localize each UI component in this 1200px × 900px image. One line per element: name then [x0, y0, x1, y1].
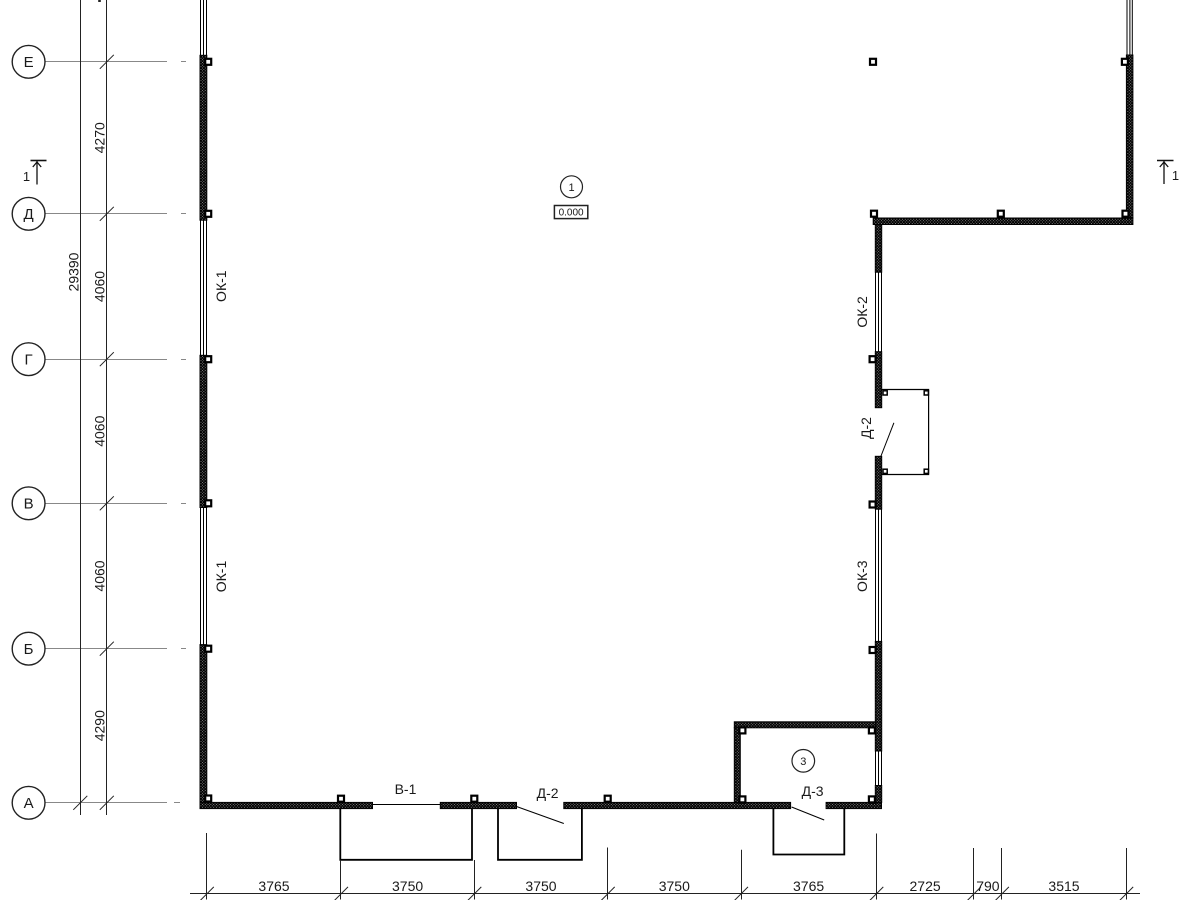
svg-text:ОК-3: ОК-3 [854, 560, 870, 592]
svg-text:1: 1 [1172, 168, 1179, 183]
svg-text:3515: 3515 [1048, 878, 1079, 894]
svg-text:3750: 3750 [659, 878, 690, 894]
svg-text:4060: 4060 [92, 560, 108, 591]
svg-text:В: В [24, 496, 34, 513]
svg-text:0.000: 0.000 [559, 208, 584, 219]
svg-text:4060: 4060 [92, 415, 108, 446]
svg-text:ОК-2: ОК-2 [854, 296, 870, 328]
svg-text:1: 1 [568, 182, 574, 194]
svg-text:Г: Г [25, 352, 33, 369]
svg-text:А: А [24, 795, 34, 812]
svg-text:3750: 3750 [525, 878, 556, 894]
svg-text:3765: 3765 [793, 878, 824, 894]
svg-text:4060: 4060 [92, 271, 108, 302]
svg-text:Б: Б [24, 641, 34, 658]
svg-text:ОК-1: ОК-1 [213, 270, 229, 302]
svg-text:Д-3: Д-3 [802, 783, 824, 799]
svg-text:2725: 2725 [910, 878, 941, 894]
svg-text:Е: Е [24, 54, 34, 71]
svg-text:Д: Д [24, 206, 34, 223]
svg-text:4290: 4290 [92, 710, 108, 741]
svg-text:29390: 29390 [66, 252, 82, 291]
svg-text:790: 790 [976, 878, 1000, 894]
svg-text:В-1: В-1 [395, 781, 417, 797]
svg-text:3750: 3750 [392, 878, 423, 894]
svg-text:4270: 4270 [92, 122, 108, 153]
svg-text:1: 1 [23, 169, 30, 184]
svg-text:3765: 3765 [258, 878, 289, 894]
svg-text:ОК-1: ОК-1 [213, 561, 229, 593]
svg-text:Д-2: Д-2 [537, 785, 559, 801]
svg-text:3: 3 [800, 756, 806, 768]
svg-text:Д-2: Д-2 [858, 417, 874, 439]
